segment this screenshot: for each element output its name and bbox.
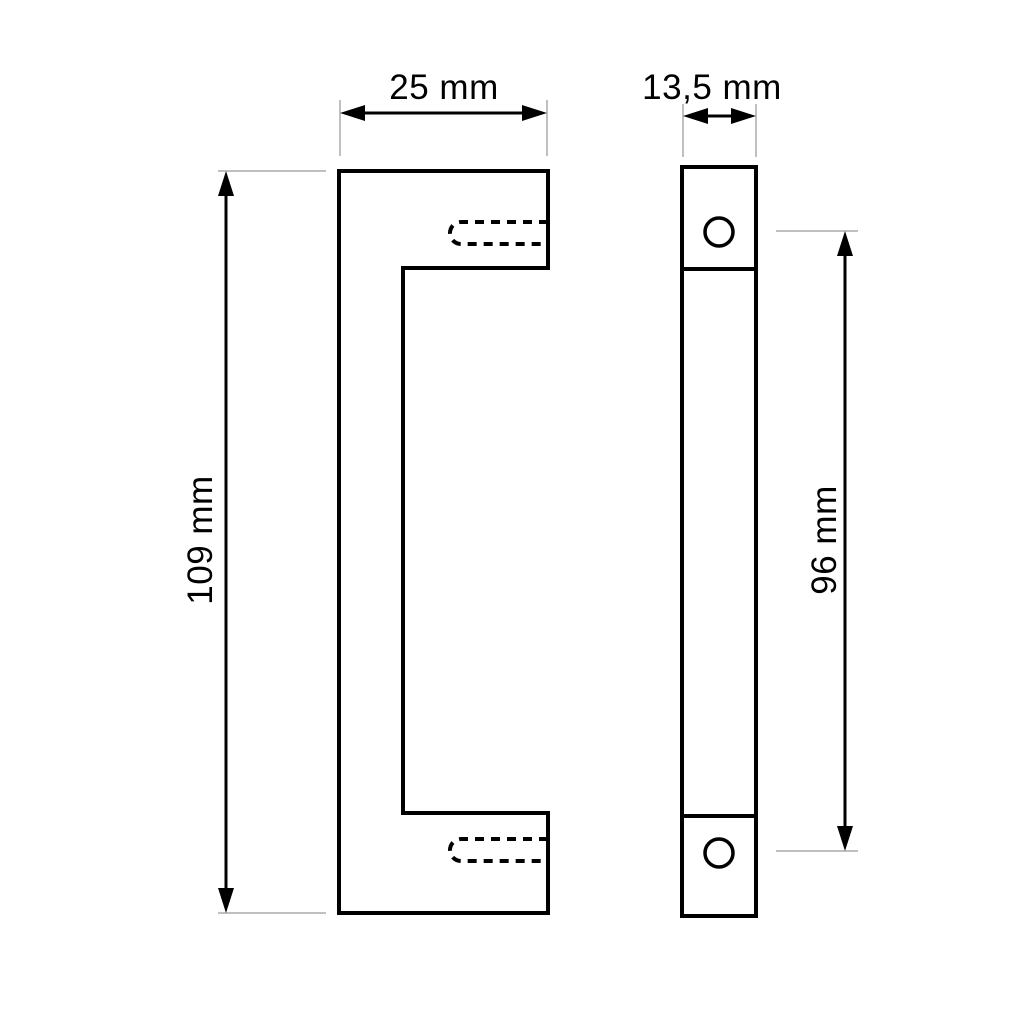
arrow-up-icon: [218, 171, 234, 196]
side-width-label: 13,5 mm: [642, 68, 782, 107]
bottom-screw-hole: [705, 839, 733, 867]
dimension-side-width: 13,5 mm: [642, 68, 782, 157]
dimension-front-height: 109 mm: [181, 171, 326, 913]
top-screw-hole: [705, 218, 733, 246]
arrow-right-icon: [731, 108, 756, 124]
side-view-outline: [682, 167, 756, 916]
arrow-up-icon: [837, 231, 853, 256]
arrow-right-icon: [522, 105, 547, 121]
dimension-front-width: 25 mm: [340, 68, 547, 156]
drawing-canvas: 25 mm 13,5 mm 109 mm 96 mm: [0, 0, 1024, 1024]
arrow-down-icon: [218, 888, 234, 913]
arrow-down-icon: [837, 826, 853, 851]
dimension-hole-spacing: 96 mm: [776, 231, 858, 851]
front-view: [339, 171, 548, 913]
front-view-outline: [339, 171, 548, 913]
hole-spacing-label: 96 mm: [805, 485, 844, 594]
arrow-left-icon: [340, 105, 365, 121]
arrow-left-icon: [683, 108, 708, 124]
side-view: [682, 167, 756, 916]
front-width-label: 25 mm: [389, 68, 498, 107]
technical-drawing: 25 mm 13,5 mm 109 mm 96 mm: [0, 0, 1024, 1024]
front-height-label: 109 mm: [181, 475, 220, 604]
